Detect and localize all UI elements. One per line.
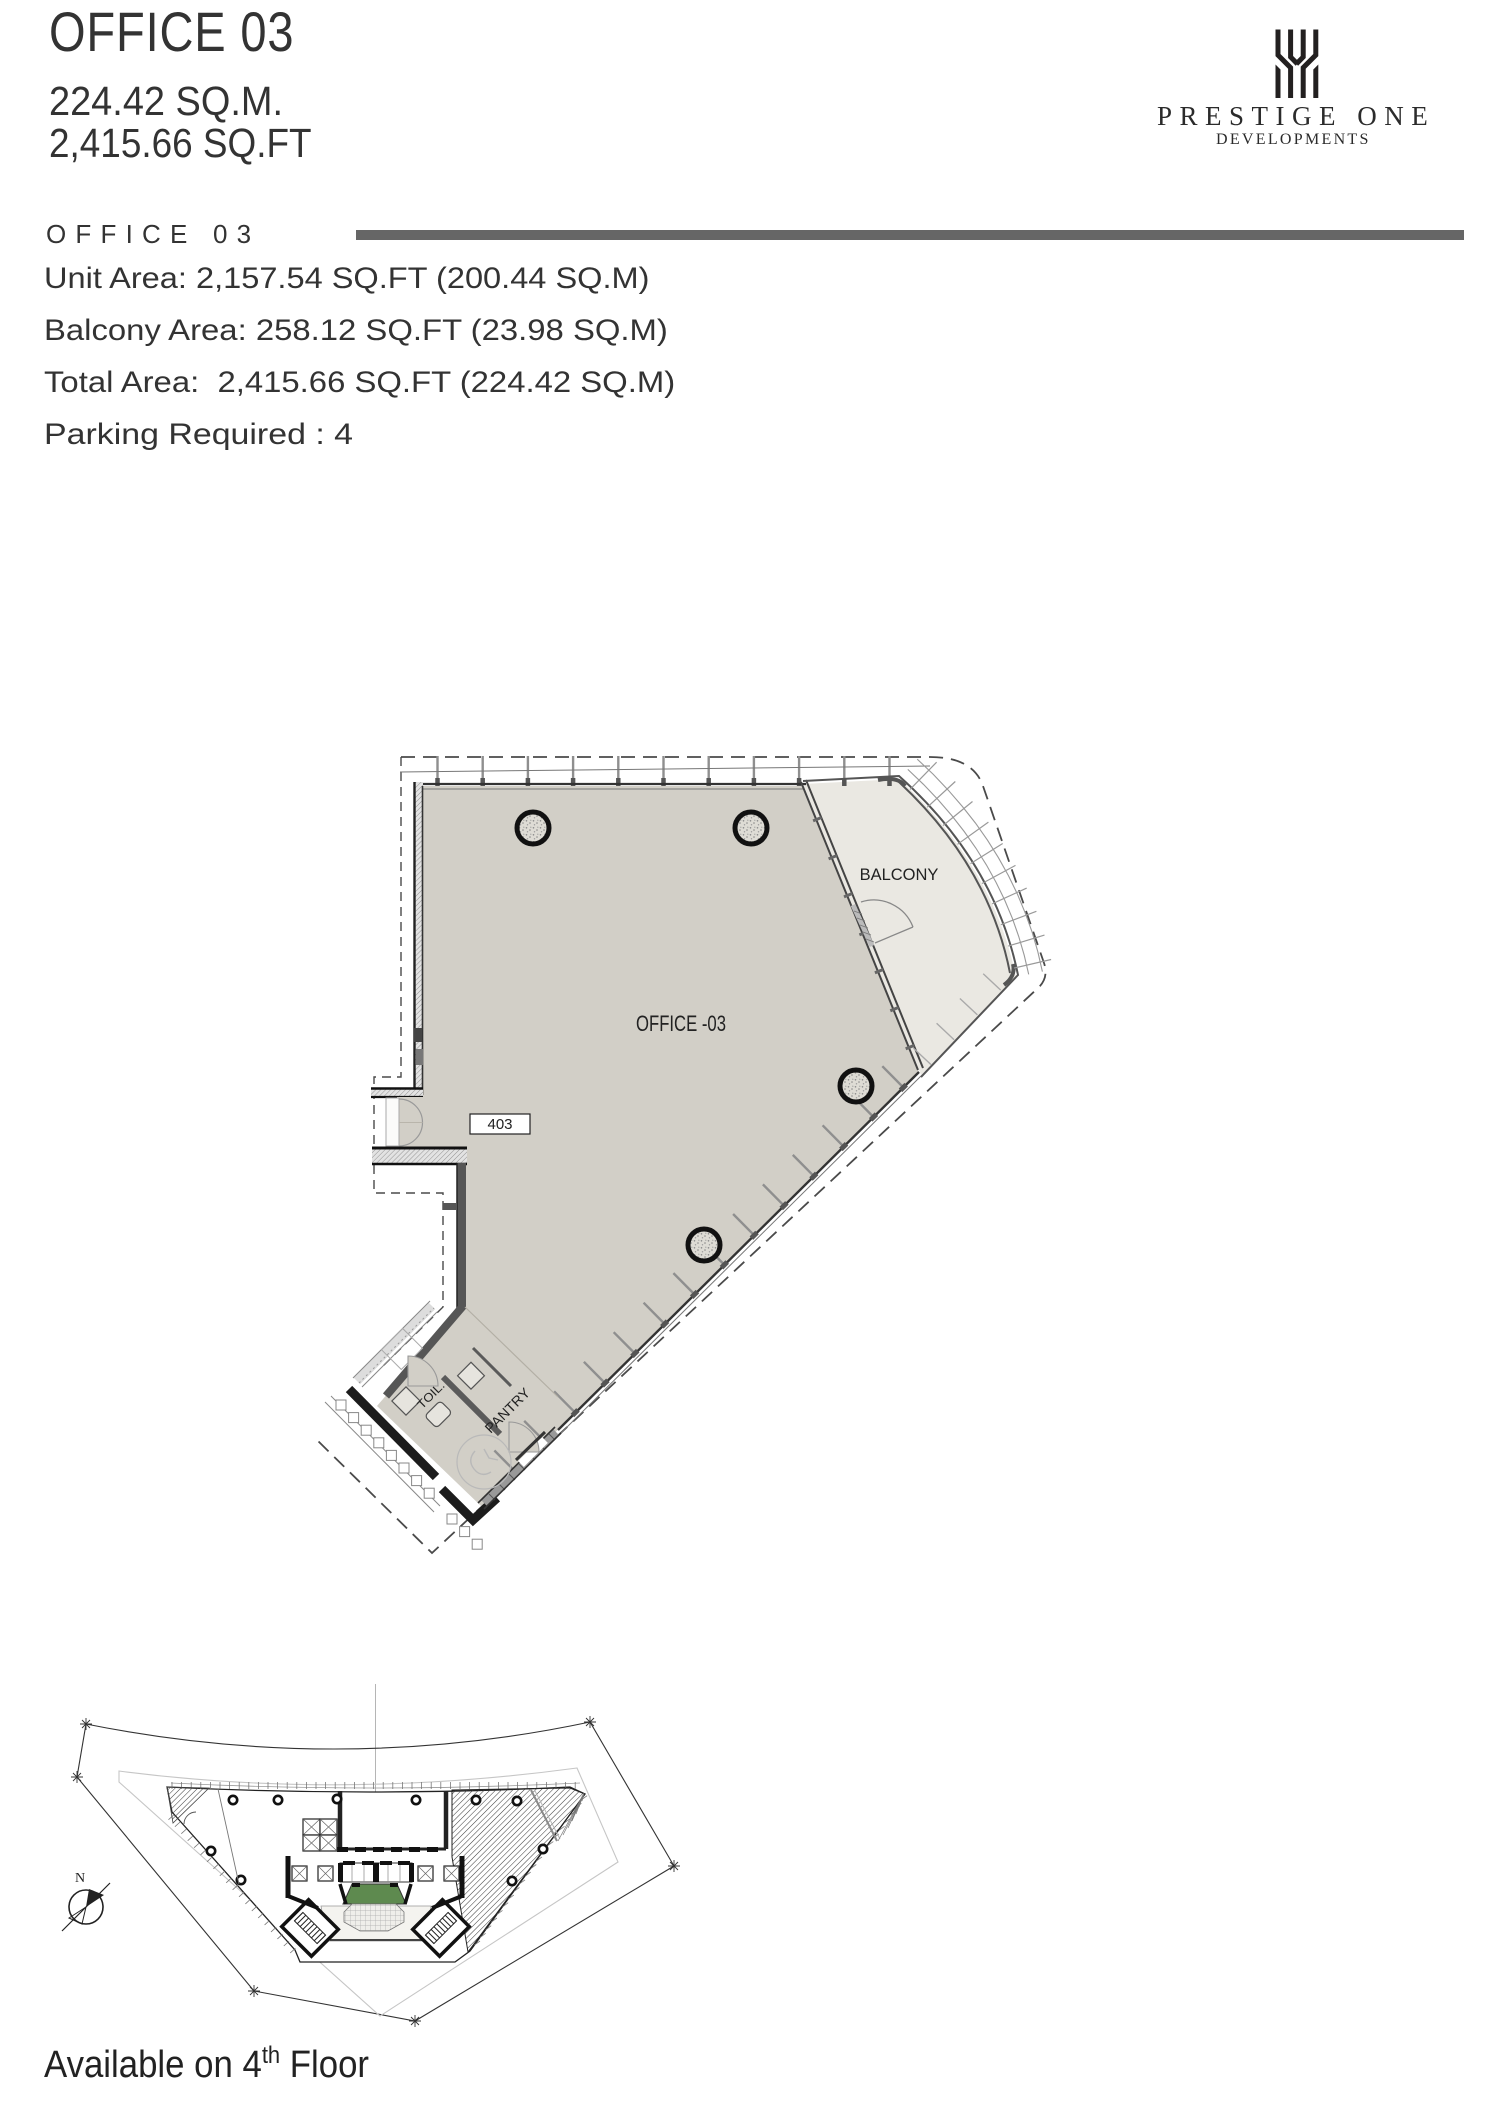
svg-text:BALCONY: BALCONY — [860, 866, 939, 884]
svg-text:OFFICE -03: OFFICE -03 — [636, 1011, 726, 1036]
svg-text:N: N — [75, 1871, 85, 1886]
svg-text:403: 403 — [487, 1116, 512, 1133]
